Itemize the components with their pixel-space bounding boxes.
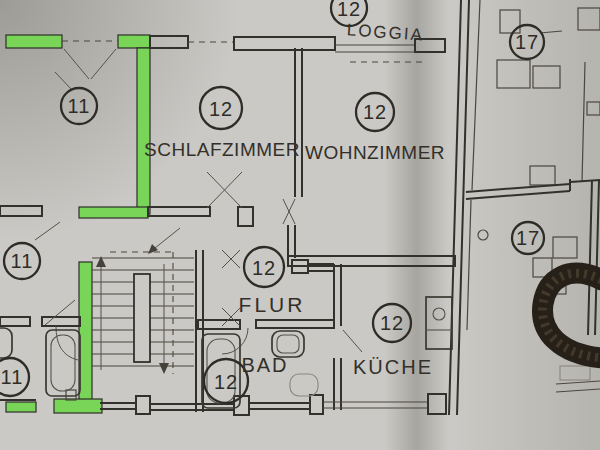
svg-text:17: 17	[515, 31, 539, 53]
floorplan-canvas: 12 LOGGIA 11 12 SCHLAFZIMMER 12 WOHNZIMM…	[0, 0, 600, 450]
room-label-kueche: KÜCHE	[353, 356, 433, 378]
svg-text:12: 12	[380, 312, 404, 334]
room-label-flur: FLUR	[239, 293, 306, 316]
green-wall-bottom-left	[6, 402, 36, 412]
room-label-bad: BAD	[241, 354, 288, 376]
svg-text:17: 17	[516, 227, 540, 249]
stair-handrail	[134, 274, 150, 362]
svg-text:12: 12	[252, 257, 276, 279]
green-wall-bottom	[54, 399, 102, 413]
room-label-wohnzimmer: WOHNZIMMER	[305, 142, 445, 163]
svg-text:11: 11	[1, 366, 24, 388]
svg-text:12: 12	[337, 0, 361, 20]
svg-text:12: 12	[363, 101, 387, 123]
green-wall-middle	[79, 207, 148, 218]
svg-text:12: 12	[214, 371, 238, 393]
svg-text:12: 12	[209, 98, 233, 120]
floorplan-photo: 12 LOGGIA 11 12 SCHLAFZIMMER 12 WOHNZIMM…	[0, 0, 600, 450]
room-label-schlafzimmer: SCHLAFZIMMER	[144, 139, 300, 160]
svg-text:11: 11	[11, 250, 34, 272]
green-wall-top-2	[118, 35, 150, 48]
green-wall-top-left	[6, 35, 62, 48]
green-wall-schlafzimmer-left	[137, 48, 150, 214]
svg-text:11: 11	[68, 95, 91, 117]
green-wall-stair-left	[79, 262, 92, 402]
